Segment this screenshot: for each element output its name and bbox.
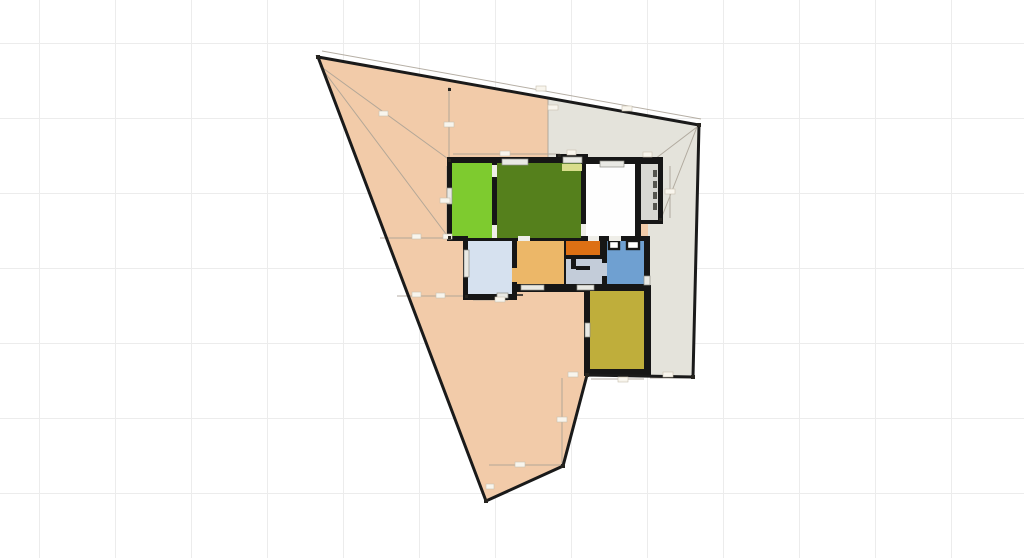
dimension-label <box>536 86 546 91</box>
dimension-label <box>618 377 628 382</box>
window[interactable] <box>563 157 582 163</box>
vertex-handle[interactable] <box>448 159 451 162</box>
door-gap[interactable] <box>518 236 530 241</box>
room-tan[interactable] <box>517 241 564 284</box>
dimension-label <box>557 417 567 422</box>
vertex-handle[interactable] <box>448 88 451 91</box>
floorplan-canvas <box>0 0 1024 558</box>
window[interactable] <box>502 159 528 165</box>
stair-hatch <box>653 203 657 210</box>
vertex-handle[interactable] <box>465 295 468 298</box>
wall-stub[interactable] <box>576 266 590 270</box>
dimension-label <box>440 198 450 203</box>
room-yellow[interactable] <box>590 291 644 369</box>
dimension-label <box>643 152 652 157</box>
dimension-label <box>567 150 576 155</box>
stair-hatch <box>653 192 657 199</box>
room-light-blue[interactable] <box>468 241 512 294</box>
vertex-handle[interactable] <box>697 123 701 127</box>
dimension-label <box>436 293 445 298</box>
vertex-handle[interactable] <box>659 218 662 221</box>
door-gap-hall[interactable] <box>602 263 607 276</box>
stair-hatch <box>653 181 657 188</box>
window[interactable] <box>644 276 650 285</box>
dimension-label <box>665 189 675 194</box>
dimension-label <box>412 292 421 297</box>
dimension-label <box>548 105 558 110</box>
stair-hatch <box>653 170 657 177</box>
dimension-label <box>444 122 454 127</box>
vertex-handle[interactable] <box>691 375 695 379</box>
wall-step[interactable] <box>450 236 468 241</box>
dimension-label <box>486 484 494 489</box>
room-white[interactable] <box>586 164 635 236</box>
window[interactable] <box>585 323 590 337</box>
room-green-dark[interactable] <box>497 163 581 238</box>
dimension-label <box>663 372 673 377</box>
floorplan-drawing <box>0 0 1024 558</box>
vertex-handle[interactable] <box>448 236 451 239</box>
closet[interactable] <box>627 241 639 249</box>
dimension-label <box>515 462 525 467</box>
door-gap[interactable] <box>492 165 497 177</box>
window[interactable] <box>600 161 624 167</box>
dimension-label <box>500 151 510 156</box>
wall-stub[interactable] <box>571 255 576 269</box>
window[interactable] <box>464 250 469 277</box>
room-green-light[interactable] <box>452 163 492 238</box>
closet[interactable] <box>609 241 619 249</box>
dimension-label <box>568 372 578 377</box>
door-gap-tan[interactable] <box>512 268 517 282</box>
dimension-label <box>495 297 505 302</box>
room-orange[interactable] <box>566 241 600 255</box>
vertex-handle[interactable] <box>484 499 488 503</box>
dimension-label <box>412 234 421 239</box>
door-gap[interactable] <box>581 224 586 236</box>
door-gap[interactable] <box>609 236 621 241</box>
dimension-label <box>622 106 632 111</box>
vertex-handle[interactable] <box>561 464 565 468</box>
vertex-handle[interactable] <box>558 154 561 157</box>
door-gap[interactable] <box>588 236 599 241</box>
dimension-label <box>379 111 388 116</box>
vertex-handle[interactable] <box>585 373 589 377</box>
window[interactable] <box>521 285 544 290</box>
vertex-handle[interactable] <box>316 55 320 59</box>
window[interactable] <box>577 285 594 290</box>
room-sliver[interactable] <box>562 164 582 171</box>
door-gap[interactable] <box>492 225 497 238</box>
